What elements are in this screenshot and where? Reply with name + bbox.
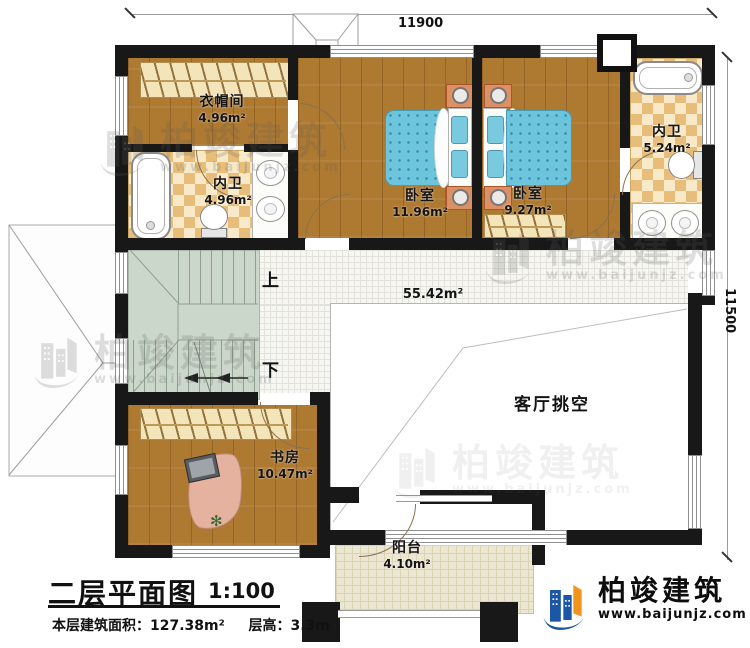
- bedroom-second-wardrobe: [484, 214, 566, 238]
- wall-segment: [115, 238, 305, 250]
- wall-segment: [532, 490, 545, 565]
- wall-segment: [349, 238, 568, 250]
- bathtub: [633, 61, 703, 95]
- lower-roof: [8, 224, 132, 478]
- nightstand: [446, 84, 474, 108]
- window: [172, 545, 300, 558]
- plant: ✻: [210, 514, 223, 529]
- room-label-bedroom-main: 卧室 11.96m²: [365, 188, 475, 219]
- title-underline: [48, 605, 280, 608]
- room-label-bedroom-second: 卧室 9.27m²: [478, 186, 578, 217]
- brand-logo: 柏竣建筑 www.baijunjz.com: [540, 576, 747, 634]
- cloakroom-wardrobe: [140, 62, 290, 98]
- wall-segment: [310, 392, 330, 405]
- balcony-railing: [396, 495, 492, 502]
- sink: [638, 210, 666, 236]
- toilet: [200, 204, 228, 230]
- wall-segment: [614, 238, 702, 250]
- window: [688, 455, 702, 529]
- stairs-down-label: 下: [262, 356, 279, 381]
- brand-name: 柏竣建筑: [598, 576, 747, 607]
- living-void-label: 客厅挑空: [492, 395, 612, 415]
- window: [115, 76, 128, 136]
- nightstand: [484, 84, 512, 108]
- sink: [671, 210, 699, 236]
- toilet: [668, 151, 695, 179]
- brand-logo-icon: [540, 576, 590, 634]
- stair-detail: [128, 248, 268, 400]
- floor-height-label: 层高：: [249, 618, 291, 634]
- dimension-tick: [124, 7, 135, 18]
- window: [330, 45, 474, 58]
- wall-segment: [244, 144, 288, 152]
- dimension-top-value: 11900: [398, 16, 443, 31]
- roof-access-box: [597, 34, 637, 72]
- floor-plan: 11900 11500: [0, 0, 750, 648]
- window: [115, 338, 128, 384]
- room-label-study: 书房 10.47m²: [235, 450, 335, 481]
- hall-area-label: 55.42m²: [390, 287, 476, 303]
- wall-segment: [317, 487, 359, 503]
- brand-website: www.baijunjz.com: [598, 607, 747, 622]
- floor-area-label: 本层建筑面积：: [52, 618, 150, 634]
- door-opening: [288, 100, 298, 150]
- floor-stats: 本层建筑面积：127.38m² 层高：3.3m: [52, 615, 330, 635]
- bathtub: [131, 152, 171, 240]
- floor-area-value: 127.38m²: [150, 618, 225, 634]
- floor-height-value: 3.3m: [291, 618, 330, 634]
- stairs-up-label: 上: [262, 266, 279, 291]
- window: [115, 252, 128, 294]
- bed-main: [385, 106, 472, 188]
- room-label-bath-left: 内卫 4.96m²: [178, 176, 278, 207]
- dimension-line-top: [130, 14, 713, 15]
- window: [702, 250, 715, 296]
- window: [115, 445, 128, 495]
- dimension-tick: [706, 7, 717, 18]
- dimension-right-value: 11500: [722, 288, 737, 333]
- wall-segment: [128, 144, 192, 152]
- wall-segment: [115, 392, 258, 405]
- room-label-cloakroom: 衣帽间 4.96m²: [172, 94, 272, 125]
- room-label-bath-right: 内卫 5.24m²: [622, 124, 712, 155]
- room-label-balcony: 阳台 4.10m²: [362, 540, 452, 571]
- bed-second: [483, 106, 570, 188]
- drawing-scale: 1:100: [208, 579, 275, 603]
- balcony-railing: [338, 610, 480, 618]
- porch-post: [480, 602, 518, 642]
